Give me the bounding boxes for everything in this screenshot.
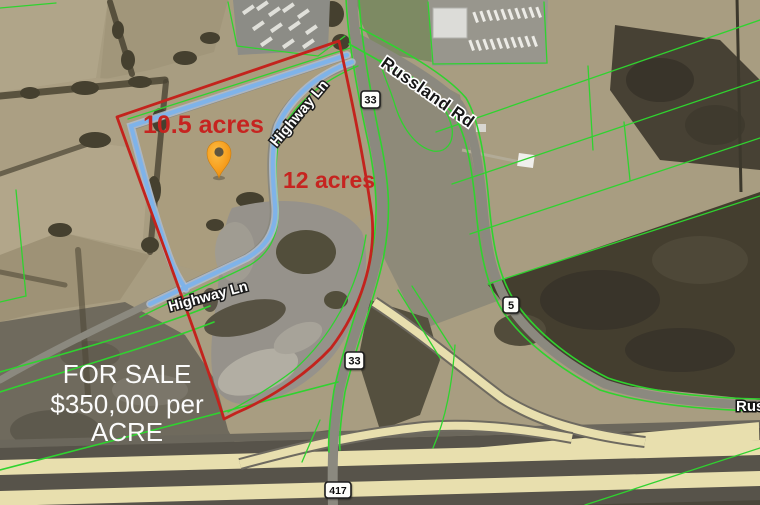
svg-text:5: 5 (508, 300, 514, 312)
russland-rd-label-east: Russland Rd (736, 398, 760, 415)
route-shield-33-south: 33 (345, 352, 364, 369)
sale-line-3: ACRE (91, 417, 163, 447)
parcel-b-acreage-label: 12 acres (283, 167, 375, 193)
aerial-map-view: Russland Rd Highway Ln Highway Ln Russla… (0, 0, 760, 505)
route-shield-33-north: 33 (361, 91, 380, 108)
route-shield-5: 5 (503, 297, 519, 313)
route-shield-417: 417 (325, 482, 351, 498)
sale-line-2: $350,000 per (50, 389, 204, 419)
svg-text:33: 33 (364, 95, 376, 107)
parcel-a-acreage-label: 10.5 acres (143, 111, 264, 139)
map-canvas[interactable]: Russland Rd Highway Ln Highway Ln Russla… (0, 0, 760, 505)
sale-line-1: FOR SALE (63, 359, 192, 389)
svg-text:33: 33 (348, 356, 360, 368)
svg-text:417: 417 (329, 485, 347, 497)
